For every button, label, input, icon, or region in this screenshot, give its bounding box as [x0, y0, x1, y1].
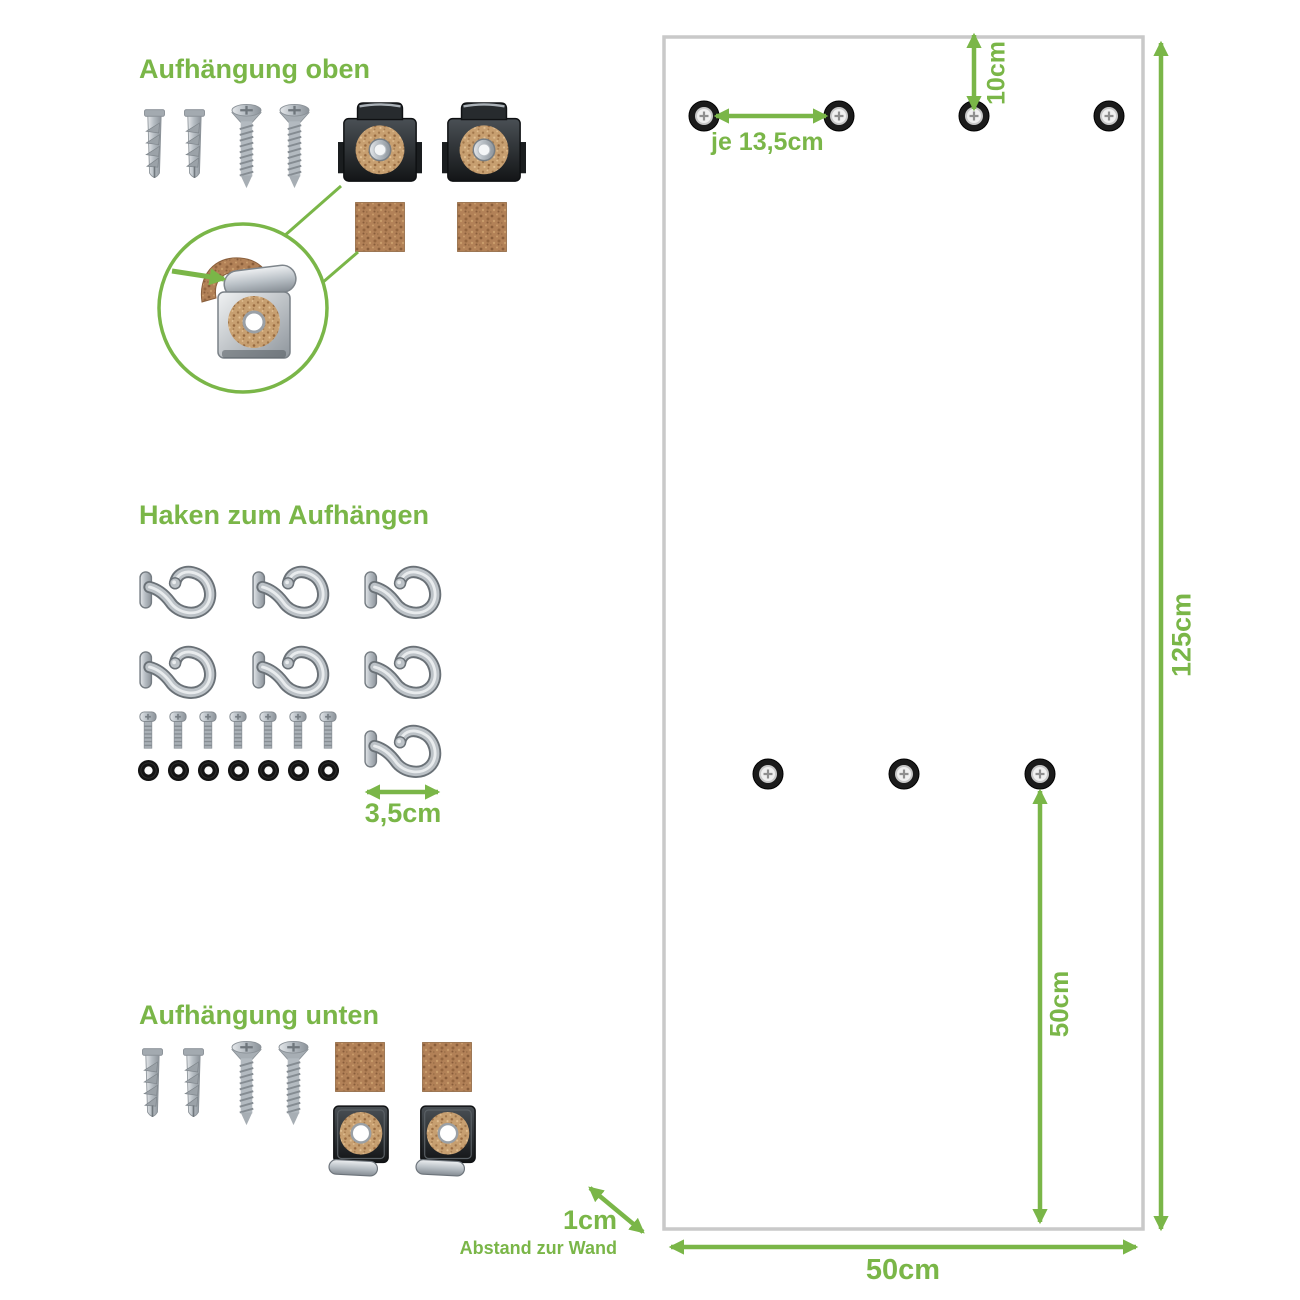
washer-icon — [198, 760, 219, 781]
mounting-hole — [889, 759, 919, 789]
washer-icon — [228, 760, 249, 781]
mounting-hole — [824, 101, 854, 131]
washer-icon — [168, 760, 189, 781]
hook-icon — [365, 731, 435, 772]
hook-icon — [140, 652, 210, 693]
dimension-label-height: 125cm — [1169, 593, 1196, 677]
mirror-clip-bottom-icon — [329, 1106, 388, 1176]
hook-icon — [365, 572, 435, 613]
mounting-hole — [753, 759, 783, 789]
section-title-top-mount: Aufhängung oben — [139, 56, 370, 83]
cork-pad-icon — [423, 1043, 472, 1092]
washer-icon — [288, 760, 309, 781]
mirror-clip-top-icon — [442, 103, 526, 181]
mirror-clip-bottom-icon — [416, 1106, 475, 1176]
wall-plug-icon — [143, 1049, 163, 1117]
cork-pad-icon — [336, 1043, 385, 1092]
cork-pad-icon — [458, 203, 507, 252]
hooks-hardware — [138, 572, 435, 781]
panel-outline — [664, 37, 1143, 1229]
hook-icon — [253, 652, 323, 693]
bolt-icon — [320, 712, 336, 748]
bolt-icon — [170, 712, 186, 748]
dimension-label-width: 50cm — [853, 1256, 953, 1285]
bolt-icon — [200, 712, 216, 748]
washer-icon — [258, 760, 279, 781]
washer-icon — [138, 760, 159, 781]
screw-icon — [232, 104, 261, 188]
callout-line — [322, 252, 358, 283]
wall-plug-icon — [145, 110, 165, 178]
dimension-label-top-offset: 10cm — [985, 41, 1010, 105]
bottom-mount-hardware — [143, 1041, 476, 1176]
bolt-icon — [290, 712, 306, 748]
bolt-icon — [260, 712, 276, 748]
hook-icon — [253, 572, 323, 613]
wall-plug-icon — [185, 110, 205, 178]
section-title-bottom-mount: Aufhängung unten — [139, 1002, 379, 1029]
dimension-caption-wall-gap: Abstand zur Wand — [447, 1239, 617, 1257]
mounting-hole — [1094, 101, 1124, 131]
dimension-label-hole-spacing: je 13,5cm — [711, 130, 824, 155]
top-mount-hardware — [145, 103, 527, 252]
dimension-label-wall-gap: 1cm — [517, 1207, 617, 1234]
installation-diagram: Aufhängung oben Haken zum Aufhängen Aufh… — [0, 0, 1300, 1300]
mounting-hole — [689, 101, 719, 131]
hook-icon — [140, 572, 210, 613]
dimension-label-hook-width: 3,5cm — [358, 800, 448, 827]
dimension-label-lower-hole-height: 50cm — [1046, 971, 1072, 1038]
mounting-hole — [1025, 759, 1055, 789]
cork-pad-icon — [356, 203, 405, 252]
washer-icon — [318, 760, 339, 781]
callout-line — [283, 186, 341, 237]
wall-plug-icon — [184, 1049, 204, 1117]
screw-icon — [279, 1041, 308, 1125]
mirror-clip-top-icon — [338, 103, 422, 181]
hook-icon — [365, 652, 435, 693]
screw-icon — [232, 1041, 261, 1125]
section-title-hooks: Haken zum Aufhängen — [139, 502, 429, 529]
diagram-artwork — [0, 0, 1300, 1300]
clip-detail-callout — [159, 186, 358, 392]
bolt-icon — [140, 712, 156, 748]
bolt-icon — [230, 712, 246, 748]
screw-icon — [280, 104, 309, 188]
